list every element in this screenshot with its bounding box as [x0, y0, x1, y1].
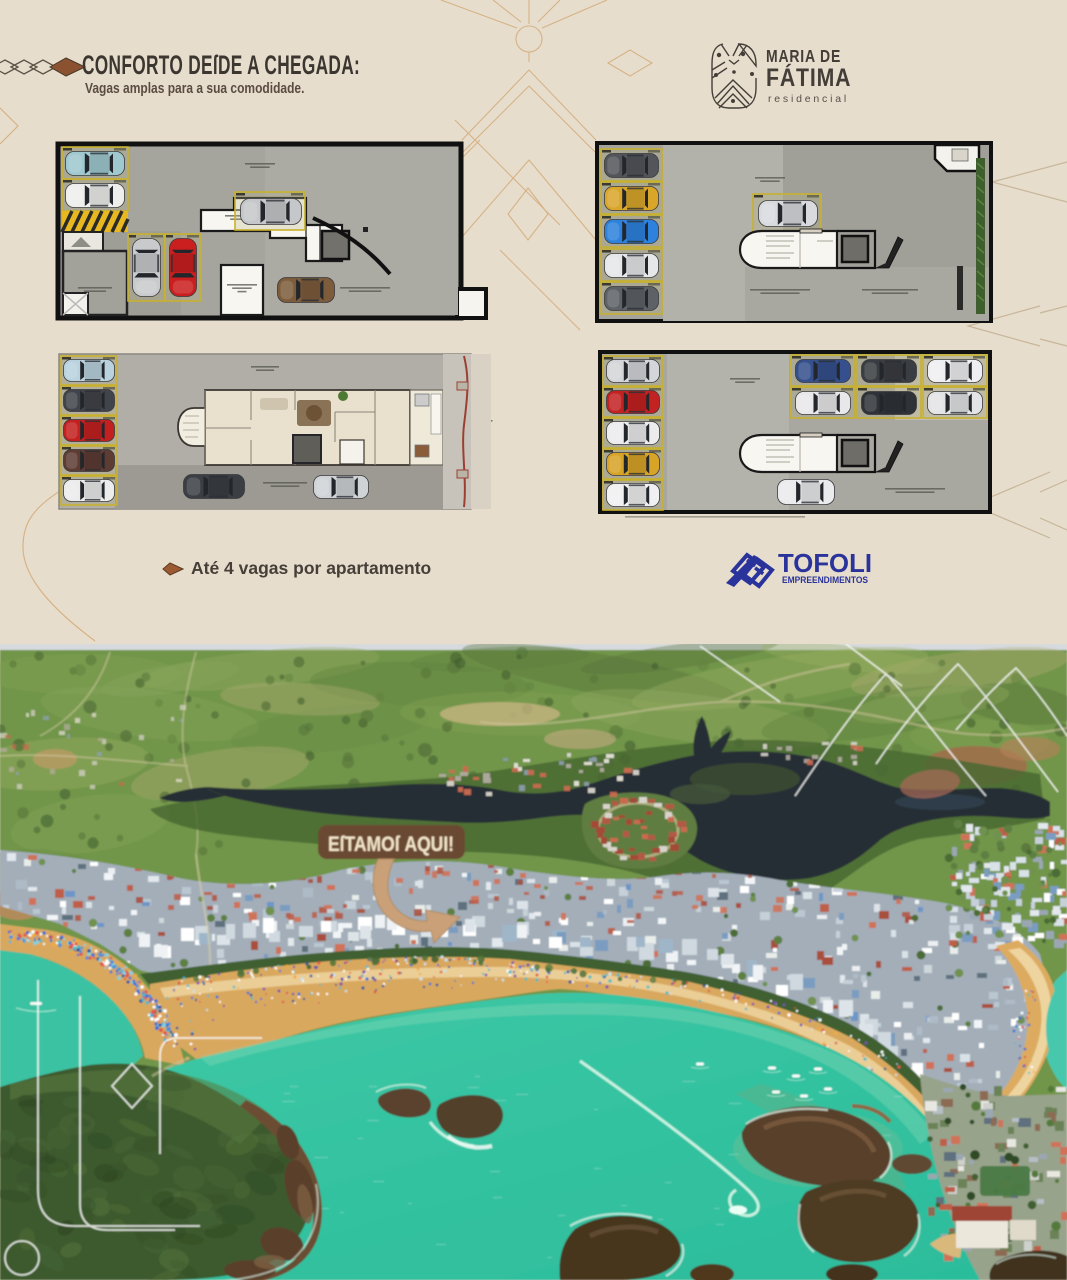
svg-text:EſTAMOſ AQUI!: EſTAMOſ AQUI! — [328, 833, 454, 856]
svg-text:TOFOLI: TOFOLI — [778, 550, 872, 578]
svg-text:EMPREENDIMENTOS: EMPREENDIMENTOS — [782, 575, 868, 585]
